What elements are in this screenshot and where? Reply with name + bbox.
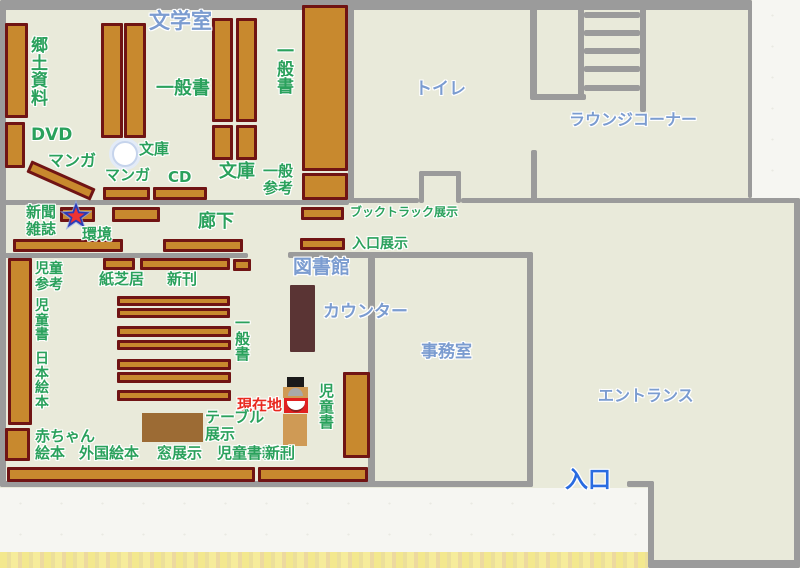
label-rouka: 廊下 — [198, 212, 234, 233]
library-floor-map: 文学室郷 土 資 料DVDマンガ一般書文庫マンガCD文庫一 般 書一般 参考トイ… — [0, 0, 800, 568]
shelf-jidosho-right — [343, 372, 370, 458]
label-jidosho-kiosk: 児 童 書 — [319, 384, 334, 431]
shelf-row-5 — [117, 359, 231, 370]
label-shinkan-bottom: 新刊 — [265, 445, 295, 462]
shelf-kyodo-shiryo — [5, 23, 28, 118]
shelf-row-4 — [117, 340, 231, 350]
label-shinbun-zasshi: 新聞 雑誌 — [26, 204, 56, 238]
shelf-akachan-ehon — [5, 428, 30, 461]
shelf-window-right — [258, 467, 368, 482]
wall-walkway-left — [648, 481, 654, 568]
wall-toilet-lounge-divider-top — [530, 0, 537, 98]
stairs-step — [584, 12, 640, 18]
shelf-row-1 — [117, 296, 230, 306]
shelf-bunko-d — [236, 125, 257, 160]
label-lounge-corner: ラウンジコーナー — [569, 111, 697, 129]
paper-edge-yellow — [0, 552, 648, 568]
label-gaikoku-ehon: 外国絵本 — [79, 445, 139, 462]
label-toshokan: 図書館 — [293, 257, 350, 279]
shelf-ippan-sanko — [302, 173, 348, 200]
label-bunko-pillar: 文庫 — [139, 141, 169, 158]
shelf-row-7 — [117, 390, 231, 401]
label-bunko-right: 文庫 — [219, 162, 255, 183]
label-kankyo: 環境 — [82, 226, 112, 243]
label-iriguchi: 入口 — [565, 467, 611, 493]
wall-bottom-right — [648, 560, 800, 568]
wall-map-right-top — [748, 0, 752, 198]
wall-right — [794, 198, 800, 568]
kiosk-head — [287, 377, 304, 387]
shelf-row-6 — [117, 372, 231, 383]
label-counter: カウンター — [323, 303, 408, 322]
shelf-bunko-a — [212, 18, 233, 122]
shelf-ippansho-tall — [302, 5, 348, 171]
shelf-booktruck-tenji — [301, 207, 344, 220]
label-ippansho-right: 一 般 書 — [277, 44, 294, 97]
label-table-tenji: テーブル 展示 — [205, 409, 264, 443]
stairs-step — [584, 30, 640, 36]
label-toire: トイレ — [415, 80, 466, 99]
label-kamishibai: 紙芝居 — [99, 271, 144, 288]
shelf-kamishibai — [103, 258, 135, 270]
shelf-kankyo — [112, 207, 160, 222]
shelf-shinkan — [140, 258, 230, 270]
shelf-row-3 — [117, 326, 231, 337]
label-shinkan-corridor: 新刊 — [167, 271, 197, 288]
wall-toilet-lounge-divider-bottom — [531, 150, 537, 203]
shelf-bunko-c — [212, 125, 233, 160]
shelf-shinkan-end — [233, 259, 251, 271]
wall-toilet-bottom-b — [461, 198, 800, 203]
shelf-manga — [103, 187, 150, 200]
label-bungakushitsu: 文学室 — [149, 10, 212, 34]
counter-desk — [290, 285, 315, 352]
label-ippan-sanko: 一般 参考 — [263, 163, 293, 197]
label-jido-sanko: 児童 参考 — [35, 262, 63, 294]
shelf-ippansho-a — [101, 23, 123, 138]
shelf-row-2 — [117, 308, 230, 318]
label-dvd: DVD — [31, 126, 72, 145]
label-manga: マンガ — [105, 167, 150, 184]
label-mado-tenji: 窓展示 — [157, 445, 202, 462]
wall-toilet-left — [348, 5, 354, 203]
label-ippansho-top: 一般書 — [156, 79, 210, 100]
shelf-window-left — [7, 467, 255, 482]
kiosk-column — [283, 414, 307, 446]
shelf-cd — [153, 187, 207, 200]
shelf-corridor-b — [163, 239, 243, 252]
label-ippansho-children: 一 般 書 — [235, 316, 250, 363]
shelf-iriguchi-tenji — [300, 238, 345, 250]
paper-top-right — [752, 0, 800, 198]
label-iriguchi-tenji: 入口展示 — [352, 237, 408, 253]
label-nihon-ehon: 日 本 絵 本 — [35, 352, 49, 410]
label-cd: CD — [168, 169, 191, 186]
label-entrance-hall: エントランス — [598, 387, 694, 405]
label-booktruck-tenji: ブックトラック展示 — [350, 206, 458, 220]
label-kyodo-shiryo: 郷 土 資 料 — [31, 38, 48, 109]
label-jidosho-left: 児 童 書 — [35, 299, 49, 343]
display-table — [142, 413, 203, 442]
wall-toilet-door-notch-top — [419, 171, 461, 176]
pillar — [112, 141, 138, 167]
shelf-bunko-b — [236, 18, 257, 122]
label-jimushitsu: 事務室 — [421, 343, 472, 362]
stairs-step — [584, 48, 640, 54]
label-manga-diagonal: マンガ — [48, 152, 96, 170]
stairs-step — [584, 66, 640, 72]
stairs-step — [584, 85, 640, 91]
stairs-rail-right — [640, 8, 646, 112]
wall-toilet-bottom-a — [348, 198, 419, 203]
shelf-dvd — [5, 122, 25, 168]
wall-office-right — [527, 252, 533, 487]
shelf-jido-left-tall — [8, 258, 32, 425]
shelf-ippansho-b — [124, 23, 146, 138]
